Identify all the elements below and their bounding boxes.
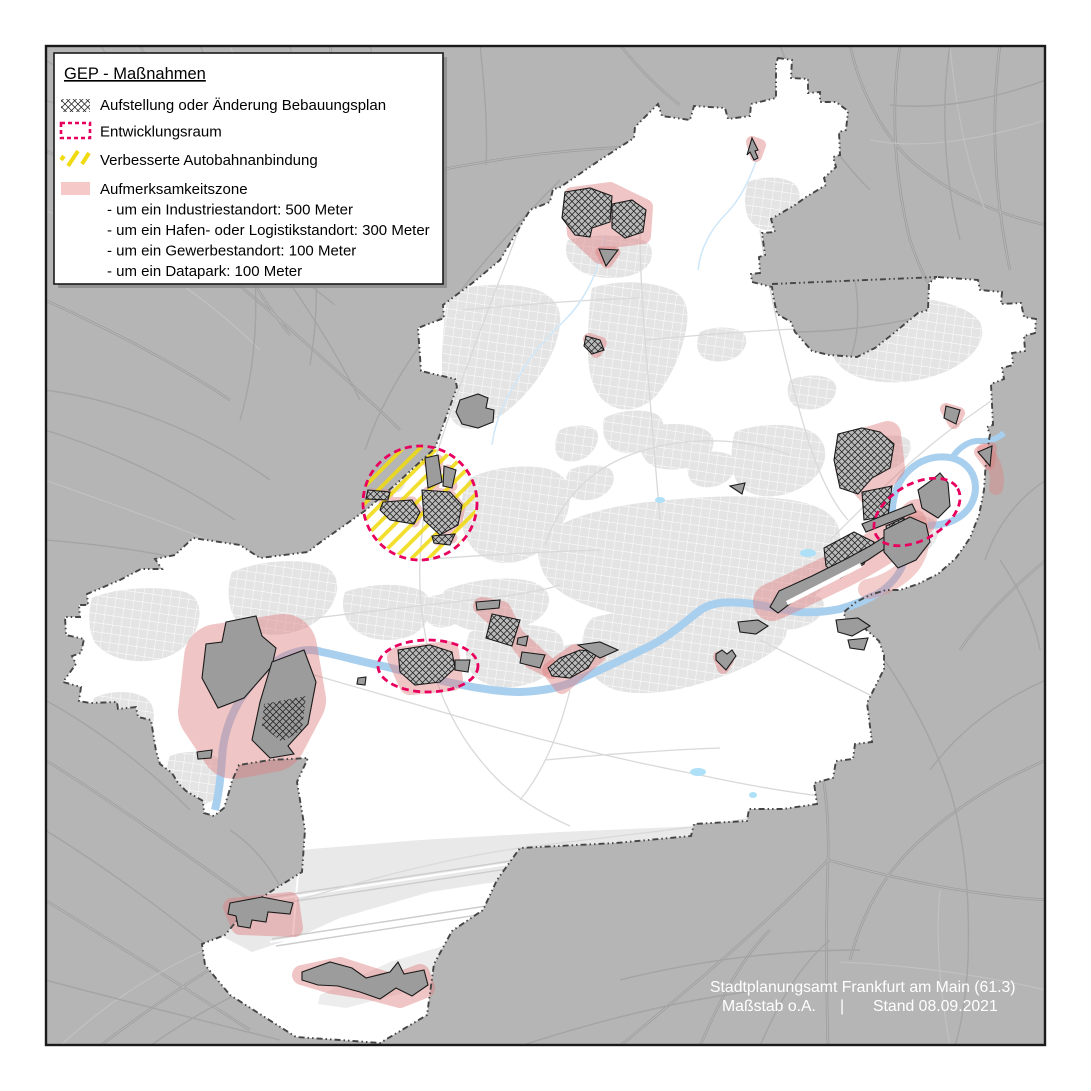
svg-text:- um ein Gewerbestandort: 100: - um ein Gewerbestandort: 100 Meter xyxy=(107,243,356,260)
svg-text:Aufstellung oder Änderung Beba: Aufstellung oder Änderung Bebauungsplan xyxy=(100,97,386,114)
svg-text:Stadtplanungsamt Frankfurt am: Stadtplanungsamt Frankfurt am Main (61.3… xyxy=(710,979,1016,996)
svg-text:Entwicklungsraum: Entwicklungsraum xyxy=(100,124,222,141)
svg-text:Maßstab o.A.: Maßstab o.A. xyxy=(722,998,816,1015)
svg-text:Aufmerksamkeitszone: Aufmerksamkeitszone xyxy=(100,181,248,198)
svg-text:Verbesserte Autobahnanbindung: Verbesserte Autobahnanbindung xyxy=(100,152,318,169)
svg-text:- um ein Datapark: 100 Meter: - um ein Datapark: 100 Meter xyxy=(107,263,302,280)
svg-text:|: | xyxy=(840,998,844,1015)
svg-text:- um ein Industriestandort: 50: - um ein Industriestandort: 500 Meter xyxy=(107,202,353,219)
svg-text:Stand 08.09.2021: Stand 08.09.2021 xyxy=(873,998,998,1015)
svg-text:GEP - Maßnahmen: GEP - Maßnahmen xyxy=(64,65,206,83)
svg-text:- um ein Hafen- oder Logistiks: - um ein Hafen- oder Logistikstandort: 3… xyxy=(107,222,430,239)
